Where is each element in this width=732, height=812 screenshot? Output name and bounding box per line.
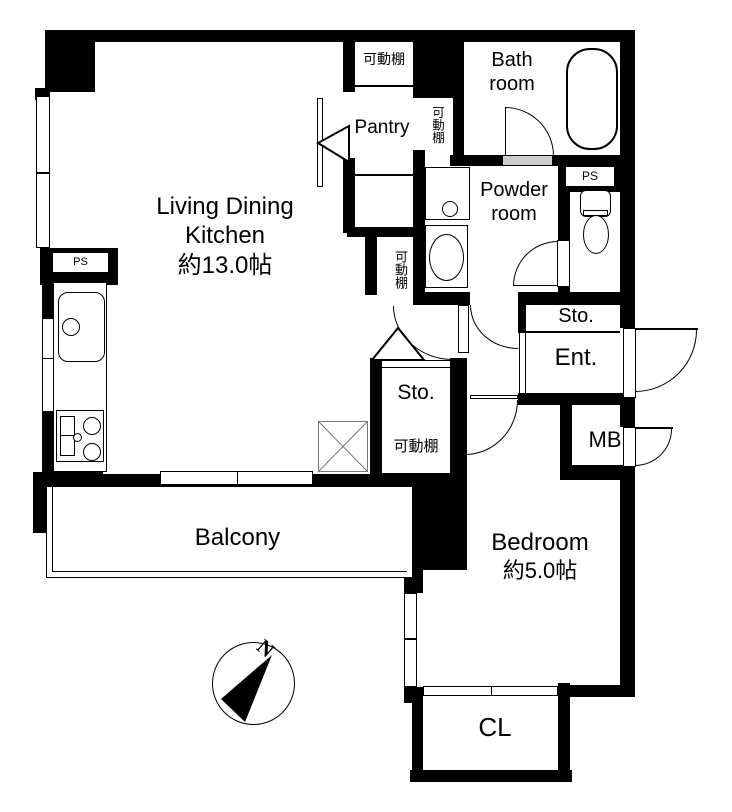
floorplan: N Living Dining Kitchen 約13.0帖 Bath room…: [0, 0, 732, 812]
wall-mid-divider: [413, 150, 425, 295]
pantry-label: Pantry: [350, 117, 414, 140]
ps-right-label: PS: [566, 167, 614, 186]
wall-shelfbox-left: [365, 237, 377, 295]
toilet-bowl-icon: [583, 215, 609, 254]
wall-stobox-left: [370, 358, 382, 485]
bedroom-label: Bedroom 約5.0帖: [450, 529, 630, 584]
wall-bath-left: [453, 42, 464, 157]
door-arc-toilet: [513, 241, 558, 286]
window-bedroom-left: [404, 593, 417, 687]
stove-burner-top-icon: [83, 417, 101, 435]
wall-cl-bottom: [410, 770, 572, 782]
shelf-label-right: 可動棚: [418, 98, 443, 152]
doorway-toilet: [557, 240, 570, 287]
shelf-label-bottom: 可動棚: [382, 240, 407, 298]
pantry-shelf-line-1: [355, 85, 413, 87]
bedroom-label-line1: Bedroom: [450, 529, 630, 558]
bedroom-size-label: 約5.0帖: [450, 558, 630, 584]
bathroom-label-line2: room: [466, 72, 558, 96]
ldk-label-line1: Living Dining: [120, 192, 330, 221]
balcony-label: Balcony: [140, 524, 335, 553]
wall-corridor-right: [518, 295, 526, 333]
entrance-label: Ent.: [536, 344, 616, 373]
threshold-bath-door: [503, 156, 552, 165]
bathroom-label-line1: Bath: [466, 48, 558, 72]
bathtub-icon: [566, 48, 618, 150]
wall-bedroom-top: [518, 393, 635, 405]
storage-entrance-label: Sto.: [546, 304, 606, 328]
door-arc-corridor: [470, 305, 518, 349]
wall-below-pantry: [347, 227, 413, 237]
powder-room-label-line1: Powder: [462, 178, 566, 202]
door-arc-bath: [505, 107, 554, 156]
window-balcony-sliding: [160, 471, 313, 485]
faucet-icon: [62, 318, 80, 336]
door-arc-entrance: [635, 330, 697, 392]
wall-corner-top-left: [45, 30, 95, 92]
shaft-x-box: [318, 421, 368, 472]
bathroom-label: Bath room: [466, 48, 558, 96]
powder-room-label: Powder room: [462, 178, 566, 226]
folding-door-pantry-icon: [315, 124, 351, 164]
stove-knob-icon: [73, 433, 82, 442]
ldk-size-label: 約13.0帖: [120, 251, 330, 280]
door-arc-meter-box: [635, 429, 672, 466]
door-arc-bedroom: [465, 400, 518, 455]
pantry-shelf-line-2: [355, 174, 413, 176]
washbasin-drain-icon: [442, 201, 458, 217]
wall-pantry-right-chunk: [413, 30, 458, 98]
storage-closet-label: Sto.: [386, 380, 446, 405]
wall-top: [45, 30, 635, 42]
ps-left-label: PS: [53, 253, 108, 272]
sliding-door-closet: [423, 686, 558, 696]
stove-burner-bottom-icon: [83, 443, 101, 461]
powder-room-label-line2: room: [462, 202, 566, 226]
wall-band-left: [413, 292, 470, 305]
entrance-step-line: [519, 333, 526, 393]
shelf-label-storage: 可動棚: [382, 438, 450, 456]
folding-door-storage-icon: [370, 326, 426, 362]
washing-machine-drum-icon: [429, 234, 464, 281]
door-leaf-bedroom: [470, 395, 518, 399]
door-leaf-corridor: [458, 305, 469, 353]
wall-mb-bottom: [560, 465, 635, 480]
meter-box-label: MB: [581, 427, 629, 453]
ldk-label-line2: Kitchen: [120, 221, 330, 250]
wall-stobox-bottom: [370, 473, 467, 485]
divider-sto-ent: [526, 331, 620, 333]
window-ldk-left-upper: [36, 96, 50, 248]
shelf-label-top: 可動棚: [353, 51, 415, 68]
ldk-label: Living Dining Kitchen 約13.0帖: [120, 192, 330, 280]
closet-label: CL: [462, 712, 528, 743]
wall-pantry-left-lower: [343, 158, 355, 233]
